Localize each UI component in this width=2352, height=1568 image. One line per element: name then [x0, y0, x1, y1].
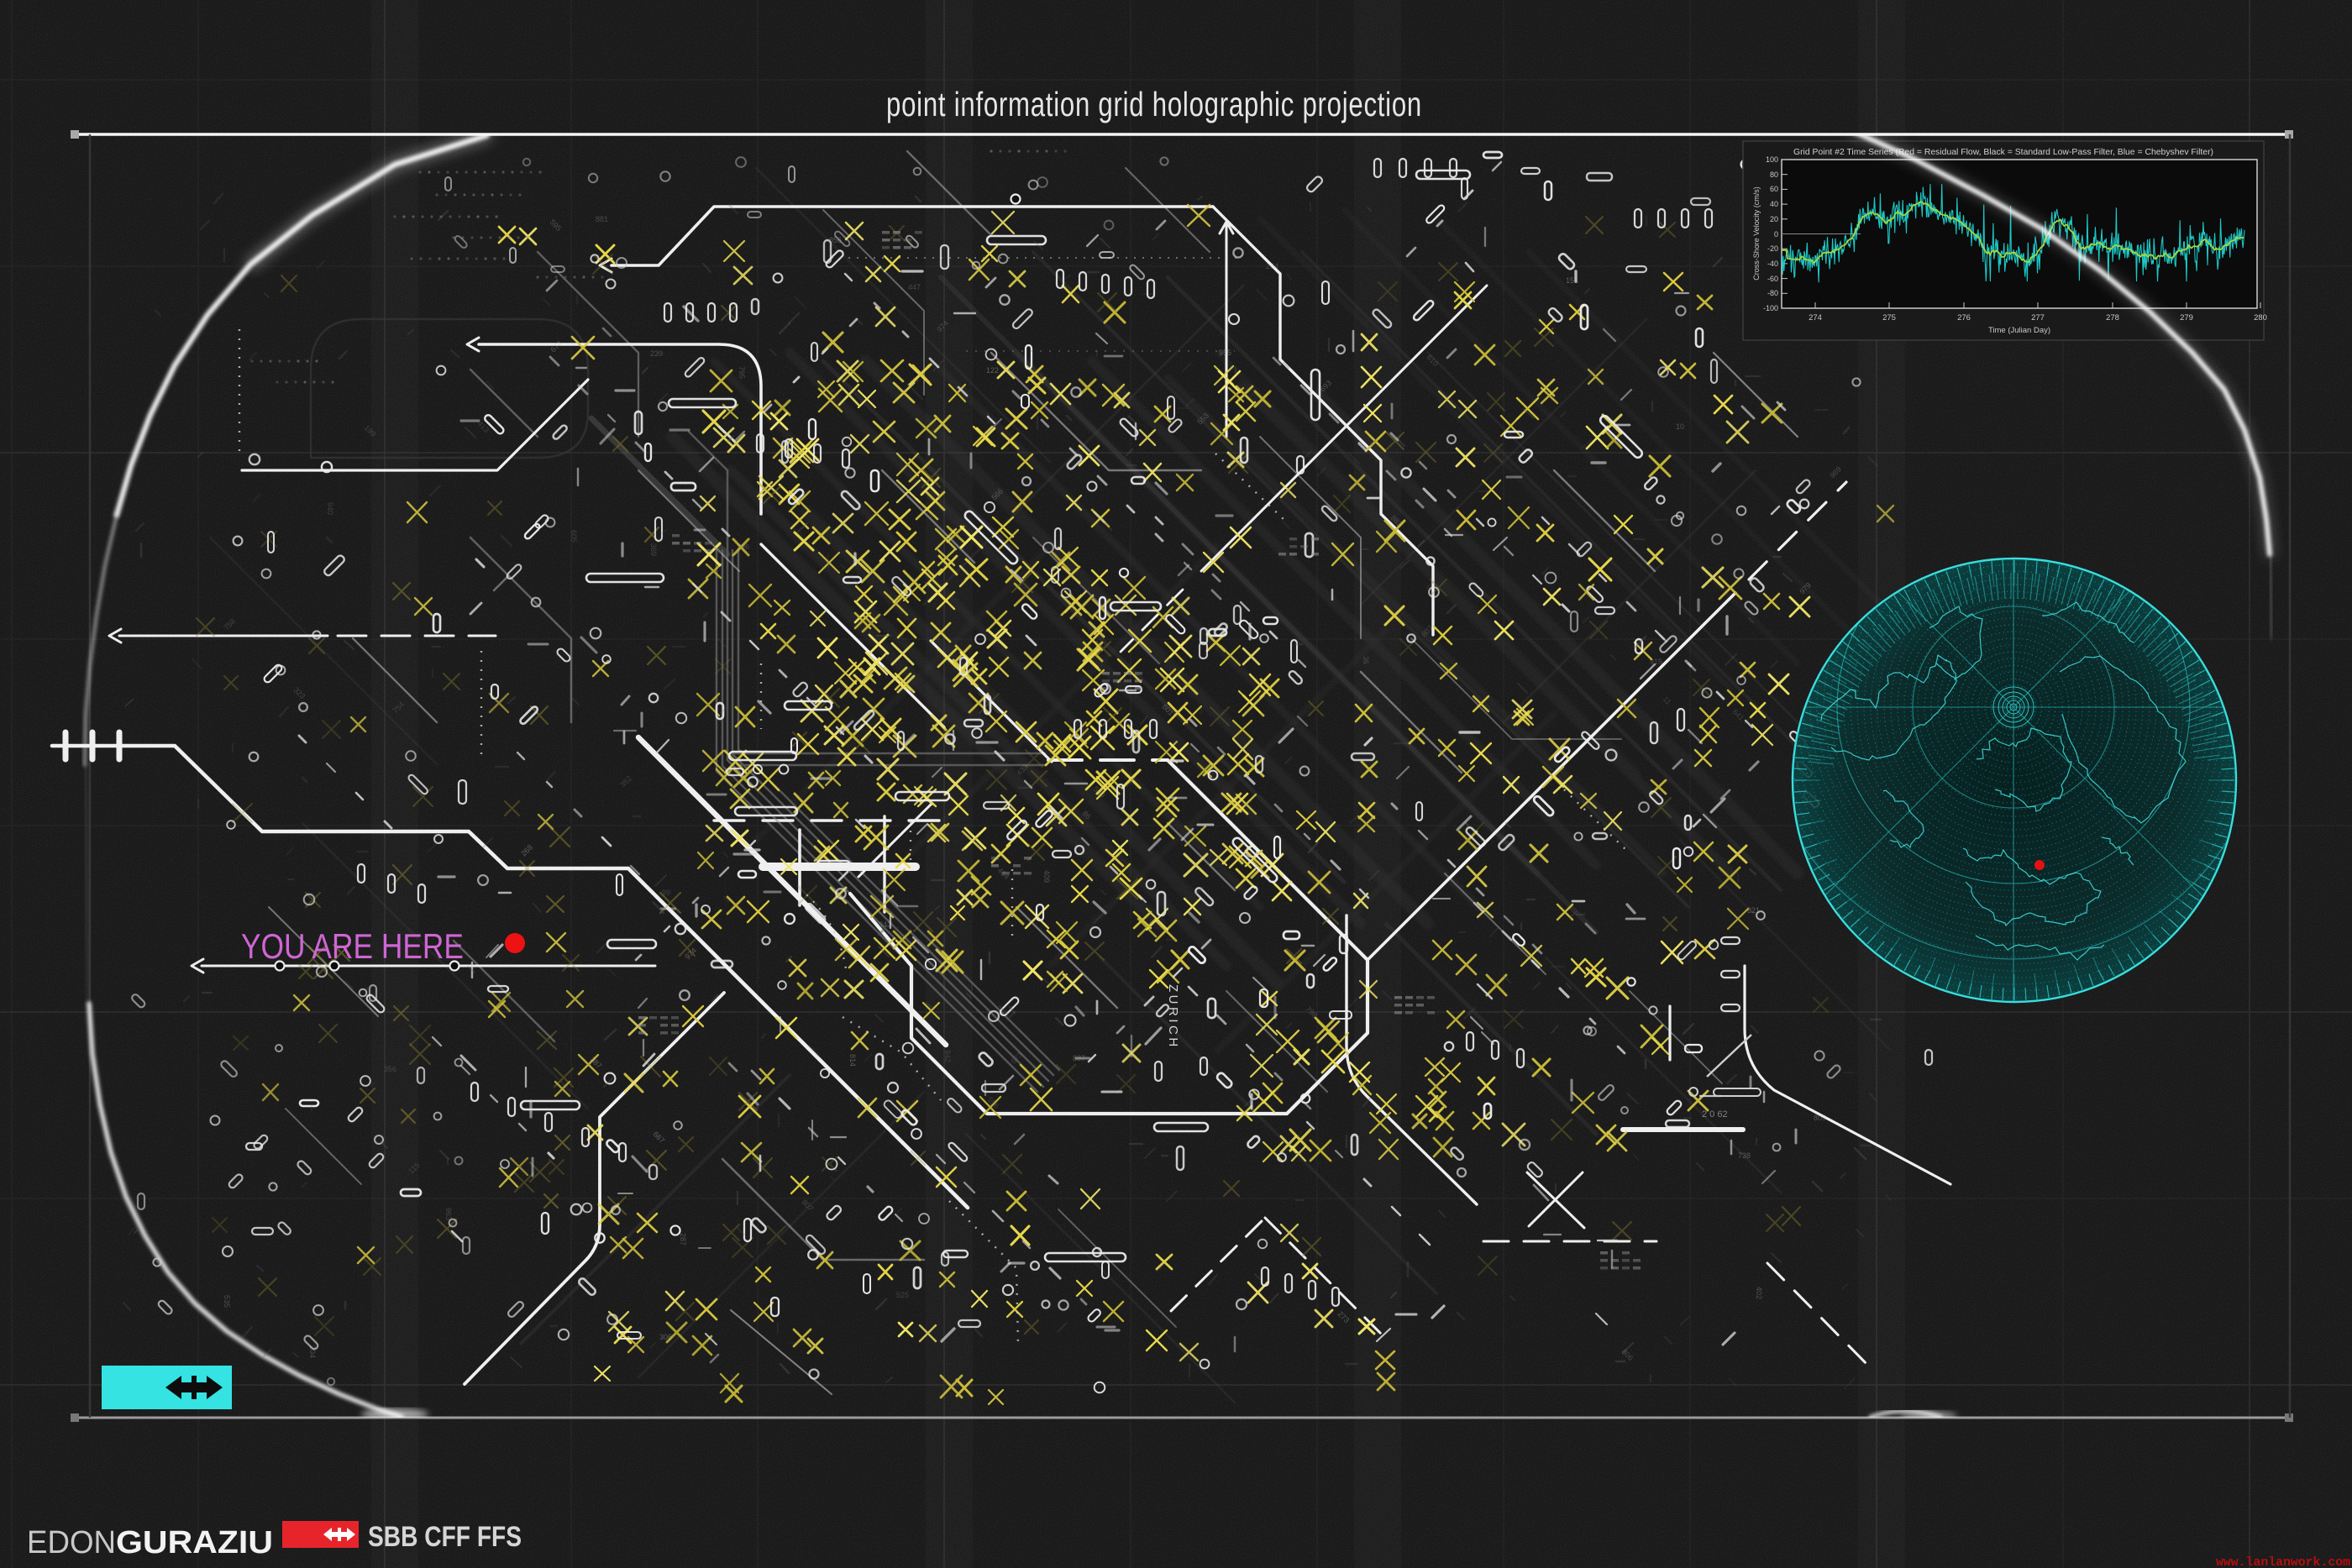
svg-text:40: 40 — [1770, 200, 1778, 208]
svg-text:-20: -20 — [1767, 244, 1778, 253]
svg-text:10: 10 — [1676, 422, 1684, 431]
svg-text:277: 277 — [2031, 313, 2045, 323]
svg-text:GURAZIU: GURAZIU — [116, 1525, 273, 1560]
svg-text:881: 881 — [596, 215, 608, 223]
svg-text:738: 738 — [1738, 1151, 1751, 1160]
svg-text:525: 525 — [896, 1291, 909, 1299]
svg-text:122: 122 — [986, 366, 999, 375]
svg-text:-60: -60 — [1767, 275, 1778, 283]
svg-text:Time (Julian Day): Time (Julian Day) — [1988, 326, 2050, 335]
svg-text:80: 80 — [1770, 170, 1778, 179]
svg-text:-100: -100 — [1763, 304, 1778, 312]
svg-text:278: 278 — [2106, 313, 2119, 323]
svg-text:SBB CFF FFS: SBB CFF FFS — [368, 1521, 522, 1553]
svg-text:Grid Point #2 Time Series (Red: Grid Point #2 Time Series (Red = Residua… — [1793, 147, 2213, 157]
svg-text:287: 287 — [679, 1233, 687, 1245]
svg-text:296: 296 — [737, 543, 749, 551]
svg-text:940: 940 — [326, 502, 334, 515]
svg-text:369: 369 — [649, 543, 658, 556]
svg-text:402: 402 — [1755, 1287, 1763, 1299]
svg-text:605: 605 — [570, 530, 578, 543]
svg-text:795: 795 — [738, 366, 746, 379]
svg-text:342: 342 — [879, 920, 891, 929]
svg-text:0: 0 — [1774, 230, 1778, 239]
svg-text:151: 151 — [1566, 276, 1578, 285]
svg-text:915: 915 — [1650, 658, 1662, 666]
svg-text:EDON: EDON — [27, 1525, 116, 1560]
svg-text:409: 409 — [1042, 870, 1051, 883]
svg-text:100: 100 — [1766, 155, 1778, 164]
svg-text:955: 955 — [1219, 349, 1231, 357]
svg-text:535: 535 — [223, 1295, 231, 1308]
svg-text:447: 447 — [908, 283, 921, 291]
svg-text:837: 837 — [1073, 1054, 1085, 1062]
svg-text:280: 280 — [2254, 313, 2267, 323]
svg-text:36: 36 — [1362, 656, 1370, 664]
svg-text:www.lanlanwork.com: www.lanlanwork.com — [2216, 1555, 2350, 1568]
svg-text:60: 60 — [1770, 185, 1778, 193]
svg-text:274: 274 — [1809, 313, 1822, 323]
svg-text:239: 239 — [650, 349, 663, 358]
svg-text:942: 942 — [943, 1050, 952, 1062]
svg-text:point information grid hologra: point information grid holographic proje… — [886, 85, 1422, 123]
svg-text:809: 809 — [1814, 1114, 1826, 1122]
svg-text:2 0 62: 2 0 62 — [1702, 1109, 1728, 1120]
svg-text:963: 963 — [444, 1208, 453, 1220]
svg-text:ZURICH: ZURICH — [1166, 984, 1180, 1050]
svg-text:YOU ARE HERE: YOU ARE HERE — [241, 926, 464, 966]
svg-text:-80: -80 — [1767, 289, 1778, 297]
svg-text:356: 356 — [384, 1065, 396, 1073]
svg-text:264: 264 — [1266, 262, 1278, 270]
svg-text:20: 20 — [1770, 215, 1778, 223]
svg-text:Cross-Shore Velocity (cm/s): Cross-Shore Velocity (cm/s) — [1752, 186, 1761, 281]
svg-text:279: 279 — [2180, 313, 2193, 323]
svg-text:814: 814 — [848, 1054, 857, 1067]
svg-text:99: 99 — [662, 889, 670, 897]
svg-text:276: 276 — [1957, 313, 1971, 323]
svg-text:-40: -40 — [1767, 260, 1778, 268]
svg-text:306: 306 — [659, 1333, 672, 1341]
svg-text:275: 275 — [1882, 313, 1896, 323]
